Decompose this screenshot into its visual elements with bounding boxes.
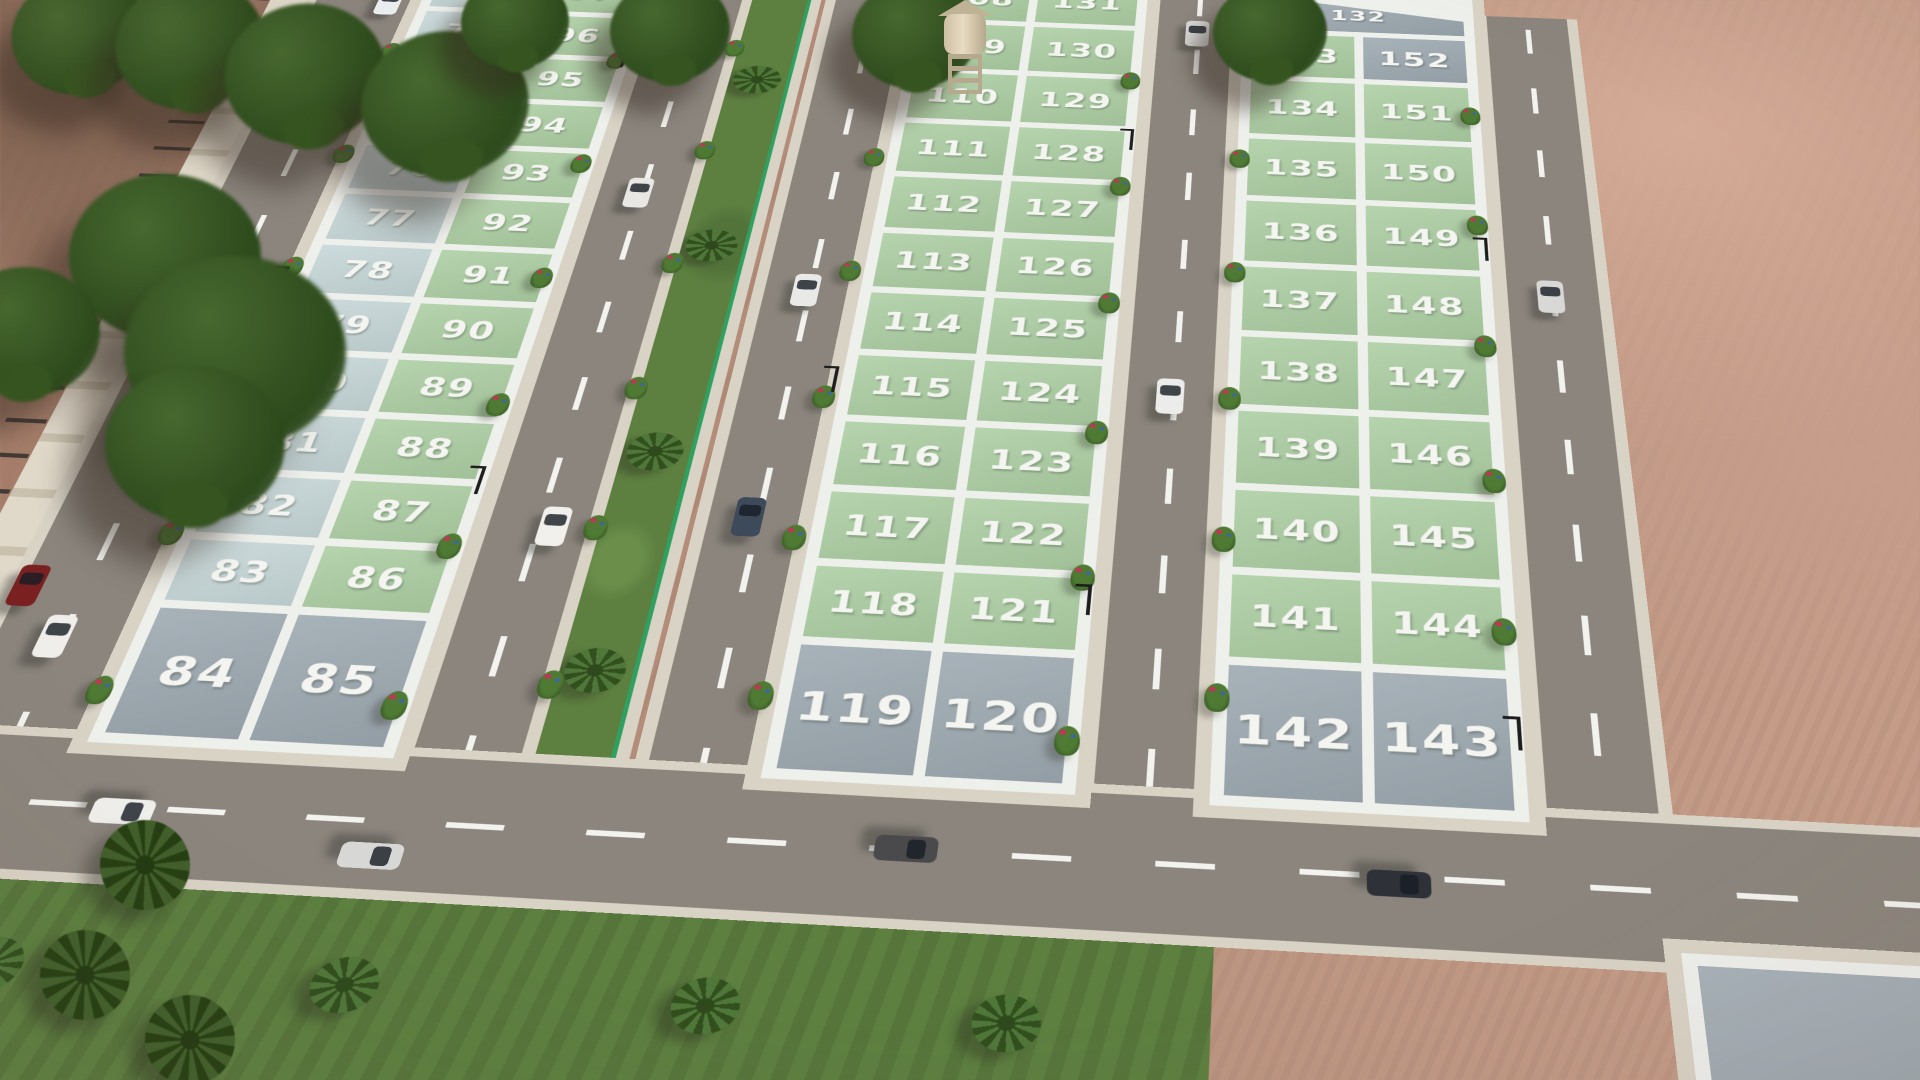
- plot-number: 152: [1378, 48, 1452, 72]
- lane-dashes: [1525, 30, 1617, 924]
- plot-120: 120: [918, 647, 1080, 788]
- plot-number: 88: [391, 432, 459, 465]
- plot-number: 112: [903, 190, 984, 218]
- plot-number: 147: [1385, 362, 1470, 394]
- palm-tree: [681, 228, 741, 262]
- plot-number: 144: [1391, 606, 1485, 645]
- plot-134: 134: [1244, 77, 1360, 140]
- plot-row: 138147: [1234, 333, 1495, 419]
- plot-number: 81: [261, 426, 330, 459]
- topiary-bush: [1234, 47, 1254, 64]
- palm-tree: [622, 431, 688, 472]
- plot-number: 73: [440, 20, 496, 43]
- plot-111: 111: [890, 120, 1015, 178]
- plot-number: 143: [1381, 713, 1504, 767]
- ground-plane: 495052161718 C.A 153 6810169100709971987…: [0, 0, 1920, 1080]
- plot-number: 113: [892, 247, 976, 276]
- plot-row: 137148: [1236, 263, 1489, 344]
- plot-79: 79: [270, 295, 417, 356]
- plot-number: 122: [976, 516, 1069, 553]
- plot-row: 136149: [1239, 198, 1484, 274]
- topiary-bush: [1224, 262, 1246, 283]
- plot-86: 86: [295, 542, 457, 618]
- plot-number: 149: [1382, 223, 1462, 252]
- plot-142: 142: [1218, 660, 1369, 807]
- plot-140: 140: [1227, 486, 1366, 577]
- plot-number: 114: [880, 307, 966, 338]
- plot-number: 142: [1233, 705, 1355, 759]
- plot-row: 117122: [812, 487, 1094, 575]
- lane-dashes: [1139, 0, 1214, 898]
- plot-number: 134: [1265, 96, 1340, 121]
- water-tower-tank: [944, 14, 986, 54]
- plot-141: 141: [1223, 570, 1367, 667]
- plot-126: 126: [990, 235, 1119, 300]
- topiary-bush: [1120, 72, 1141, 90]
- plot-number: 117: [840, 509, 934, 545]
- plot-number: 141: [1249, 599, 1342, 638]
- plot-number: 93: [496, 160, 555, 186]
- car: [1536, 280, 1566, 313]
- plot-117: 117: [812, 487, 960, 568]
- car: [1185, 21, 1210, 47]
- plot-135: 135: [1242, 136, 1361, 203]
- plot-row: 135150: [1242, 136, 1480, 208]
- plot-row: 112127: [879, 173, 1124, 240]
- plot-74: 74: [385, 51, 514, 100]
- topiary-bush: [1218, 386, 1241, 410]
- car: [872, 834, 939, 863]
- plot-row: 142143: [1218, 660, 1521, 815]
- plot-row: 119120: [770, 640, 1080, 788]
- plot-113: 113: [867, 230, 999, 295]
- plot-80: 80: [244, 350, 395, 415]
- plot-row: 113126: [867, 230, 1119, 300]
- plot-number: 118: [825, 584, 922, 623]
- plot-block-right: 1321331521341511351501361491371481381471…: [1209, 0, 1529, 822]
- plot-number: 123: [987, 444, 1077, 478]
- plot-148: 148: [1362, 269, 1490, 345]
- scene: 495052161718 C.A 153 6810169100709971987…: [0, 0, 1920, 1080]
- plot-88: 88: [348, 415, 501, 483]
- plot-row: 134151: [1244, 77, 1476, 145]
- plot-number: 91: [457, 262, 519, 290]
- plot-number: 78: [336, 256, 399, 284]
- plot-95: 95: [496, 55, 623, 104]
- site-plan-render: { "labels": { "common_area": "C.A" }, "p…: [0, 0, 1920, 1080]
- plot-row: 115124: [841, 352, 1107, 430]
- plot-125: 125: [981, 294, 1114, 363]
- plot-row: 116123: [827, 418, 1101, 501]
- palm-tree: [301, 955, 387, 1015]
- plot-number: 96: [549, 25, 604, 48]
- plot-number: 76: [381, 156, 441, 182]
- plot-73: 73: [405, 8, 531, 55]
- plot-118: 118: [796, 561, 949, 647]
- plot-83: 83: [157, 535, 322, 610]
- plot-number: 87: [366, 495, 436, 530]
- topiary-bush: [1229, 149, 1250, 168]
- plot-number: 128: [1030, 140, 1108, 166]
- plot-77: 77: [319, 191, 458, 247]
- plot-row: 140145: [1227, 486, 1506, 584]
- plot-number: 133: [1267, 44, 1340, 68]
- plot-94: 94: [478, 100, 608, 151]
- plot-121: 121: [938, 568, 1088, 654]
- plot-number: 82: [233, 489, 304, 523]
- plot-78: 78: [295, 241, 438, 300]
- plot-number: 129: [1037, 88, 1113, 113]
- plot-number: 92: [477, 210, 538, 237]
- plot-123: 123: [961, 424, 1102, 501]
- plot-145: 145: [1365, 492, 1506, 584]
- plot-number: 138: [1257, 356, 1341, 388]
- plot-92: 92: [438, 196, 575, 252]
- plot-row: 111128: [890, 120, 1129, 183]
- plot-number: 150: [1381, 160, 1459, 187]
- plot-number: 72: [459, 0, 513, 1]
- plot-number: 90: [436, 316, 500, 346]
- plot-136: 136: [1239, 198, 1361, 269]
- water-tower-legs: [948, 54, 982, 94]
- plot-151: 151: [1359, 81, 1476, 145]
- plot-81: 81: [217, 409, 372, 477]
- plot-152: 152: [1359, 35, 1472, 86]
- plot-number: 116: [854, 438, 945, 472]
- plot-115: 115: [841, 352, 981, 424]
- plot-number: 127: [1022, 195, 1102, 223]
- plot-number: 115: [867, 371, 955, 403]
- plot-number: 137: [1259, 285, 1341, 315]
- plot-number: 94: [515, 113, 573, 138]
- plot-number: 121: [966, 591, 1062, 630]
- plot-number: 75: [401, 109, 460, 134]
- plot-number: 136: [1261, 218, 1340, 246]
- topiary-bush: [1211, 526, 1236, 553]
- plot-127: 127: [999, 178, 1125, 240]
- plot-row: 114125: [854, 289, 1113, 363]
- plot-number: 74: [421, 63, 478, 87]
- plot-number: 95: [532, 68, 588, 92]
- plot-number: 148: [1384, 291, 1467, 321]
- plot-number: 135: [1263, 155, 1340, 182]
- plot-number: 125: [1005, 313, 1090, 344]
- plot-116: 116: [827, 418, 971, 494]
- palm-tree: [729, 65, 784, 94]
- plot-row: 110129: [901, 69, 1134, 129]
- plot-number: 139: [1254, 432, 1341, 466]
- plot-number: 86: [341, 561, 413, 597]
- plot-number: 130: [1044, 39, 1119, 63]
- plot-number: 119: [792, 682, 919, 735]
- plot-146: 146: [1364, 413, 1500, 499]
- plot-row: 154155: [1691, 960, 1920, 1080]
- plot-138: 138: [1234, 333, 1364, 413]
- plot-row: 141144: [1223, 570, 1511, 675]
- plot-137: 137: [1236, 263, 1362, 338]
- plot-number: 124: [996, 377, 1083, 410]
- topiary-bush: [1204, 683, 1230, 713]
- plot-block-far-right: 154155164: [1681, 953, 1920, 1080]
- plot-76: 76: [342, 142, 478, 196]
- plot-149: 149: [1361, 203, 1485, 274]
- car: [1155, 378, 1185, 414]
- plot-154: 154: [1691, 960, 1920, 1080]
- plot-number: 84: [150, 647, 246, 697]
- plot-139: 139: [1230, 407, 1364, 492]
- plot-128: 128: [1007, 124, 1129, 183]
- car: [86, 797, 158, 825]
- plot-number: 140: [1252, 513, 1342, 549]
- plot-number: 151: [1379, 100, 1455, 125]
- plot-number: 145: [1389, 519, 1480, 556]
- plot-row: 118121: [796, 561, 1087, 654]
- plot-row: 8485: [97, 603, 433, 752]
- plot-number: 126: [1014, 252, 1097, 281]
- plot-number: 89: [414, 373, 480, 404]
- plot-number: 146: [1387, 438, 1475, 472]
- plot-number: 111: [914, 135, 993, 161]
- plot-number: 120: [938, 689, 1063, 742]
- plot-129: 129: [1015, 73, 1134, 129]
- plot-143: 143: [1367, 668, 1521, 816]
- plot-119: 119: [770, 640, 938, 780]
- palm-tree: [558, 647, 631, 695]
- plot-82: 82: [188, 470, 348, 541]
- plot-93: 93: [459, 147, 593, 201]
- palm-tree: [665, 976, 745, 1037]
- palm-tree: [0, 935, 34, 994]
- plot-number: 79: [312, 310, 377, 340]
- plot-144: 144: [1366, 577, 1512, 675]
- plot-75: 75: [364, 95, 496, 146]
- plot-90: 90: [395, 300, 540, 362]
- plot-133: 133: [1247, 30, 1359, 81]
- plot-124: 124: [971, 357, 1108, 429]
- car: [335, 841, 406, 870]
- plot-number: 77: [359, 205, 421, 232]
- plot-number: 85: [292, 655, 386, 705]
- car: [1367, 869, 1432, 899]
- plot-number: 80: [287, 367, 354, 398]
- water-tower: [938, 4, 992, 96]
- plot-112: 112: [879, 173, 1007, 235]
- plot-number: 131: [1051, 0, 1124, 14]
- plot-number: 83: [204, 554, 277, 590]
- plot-114: 114: [854, 289, 990, 357]
- plot-number: 132: [1330, 7, 1386, 25]
- plot-150: 150: [1360, 140, 1480, 207]
- plot-122: 122: [950, 494, 1095, 575]
- palm-tree: [968, 993, 1043, 1054]
- plot-130: 130: [1023, 24, 1139, 77]
- plot-number: 97: [565, 0, 619, 5]
- plot-row: 139146: [1230, 407, 1499, 499]
